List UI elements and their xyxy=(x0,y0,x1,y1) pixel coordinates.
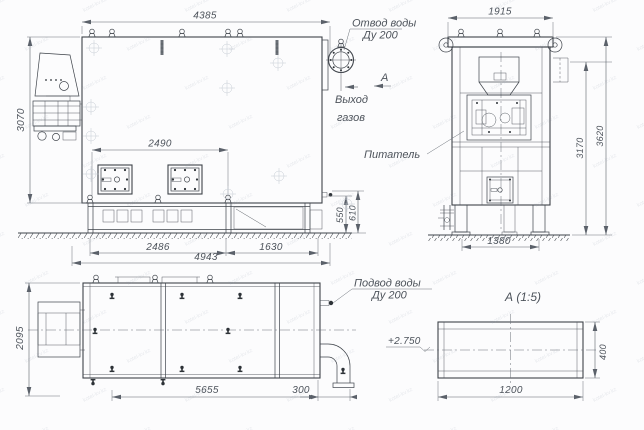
watermark-text: kotel-kv.kz xyxy=(330,36,356,53)
front-door-right xyxy=(168,165,202,194)
detail-a-title: А (1:5) xyxy=(504,290,541,304)
watermark-text: kotel-kv.kz xyxy=(388,0,414,14)
elevation-value: +2.750 xyxy=(388,336,421,347)
watermark-text: kotel-kv.kz xyxy=(534,192,560,209)
watermark-text: kotel-kv.kz xyxy=(0,75,6,92)
dim-front-doors: 2490 xyxy=(147,139,172,150)
watermark-text: kotel-kv.kz xyxy=(592,309,618,326)
watermark-text: kotel-kv.kz xyxy=(24,114,50,131)
dim-h-610: 610 xyxy=(348,205,358,221)
front-hanger-rods xyxy=(161,40,279,55)
dim-base-total: 4943 xyxy=(194,252,218,263)
end-view: 1915 xyxy=(364,7,612,252)
watermark-text: kotel-kv.kz xyxy=(126,270,152,287)
watermark-text: kotel-kv.kz xyxy=(184,75,210,92)
watermark-text: kotel-kv.kz xyxy=(126,348,152,365)
watermark-text: kotel-kv.kz xyxy=(592,0,618,14)
plan-dimensions: 2095 5655 300 xyxy=(15,283,357,401)
watermark-text: kotel-kv.kz xyxy=(286,75,312,92)
watermark-text: kotel-kv.kz xyxy=(0,231,6,248)
front-feeder-machine xyxy=(33,53,82,141)
watermark-text: kotel-kv.kz xyxy=(592,153,618,170)
watermark-text: kotel-kv.kz xyxy=(24,192,50,209)
watermark-text: kotel-kv.kz xyxy=(636,348,644,365)
watermark-text: kotel-kv.kz xyxy=(126,36,152,53)
watermark-text: kotel-kv.kz xyxy=(228,426,254,430)
watermark-text: kotel-kv.kz xyxy=(534,270,560,287)
registration-marks xyxy=(83,40,355,212)
front-drain-fitting xyxy=(322,193,332,198)
watermark-text: kotel-kv.kz xyxy=(24,36,50,53)
plan-inlet-fitting xyxy=(320,301,333,306)
dim-h-550: 550 xyxy=(335,207,345,223)
watermark-text: kotel-kv.kz xyxy=(388,387,414,404)
feeder-callout: Питатель xyxy=(364,131,464,161)
end-drain-pipe xyxy=(438,205,454,230)
front-dimensions: 4385 3070 2490 2486 1630 4943 550 610 xyxy=(16,11,366,267)
watermark-text: kotel-kv.kz xyxy=(490,153,516,170)
end-gas-duct xyxy=(553,58,568,82)
watermark-text: kotel-kv.kz xyxy=(534,426,560,430)
dim-base-a: 2486 xyxy=(145,242,170,253)
plan-view: Подвод воды Ду 200 2095 5655 300 xyxy=(15,275,432,401)
watermark-text: kotel-kv.kz xyxy=(330,426,356,430)
front-view: Отвод воды Ду 200 А Выход газов xyxy=(16,11,416,267)
watermark-text: kotel-kv.kz xyxy=(24,426,50,430)
watermark-text: kotel-kv.kz xyxy=(330,270,356,287)
end-feeder-unit xyxy=(467,95,531,140)
watermark-text: kotel-kv.kz xyxy=(126,114,152,131)
watermark-text: kotel-kv.kz xyxy=(82,0,108,14)
watermark-text: kotel-kv.kz xyxy=(286,309,312,326)
watermark-text: kotel-kv.kz xyxy=(388,231,414,248)
watermark-text: kotel-kv.kz xyxy=(388,309,414,326)
dim-front-width: 4385 xyxy=(193,11,217,22)
watermark-text: kotel-kv.kz xyxy=(0,309,6,326)
watermark-text: kotel-kv.kz xyxy=(432,426,458,430)
watermark-text: kotel-kv.kz xyxy=(636,192,644,209)
watermark-text: kotel-kv.kz xyxy=(184,309,210,326)
watermark-text: kotel-kv.kz xyxy=(82,309,108,326)
watermark-text: kotel-kv.kz xyxy=(636,426,644,430)
watermark-text: kotel-kv.kz xyxy=(432,114,458,131)
watermark-text: kotel-kv.kz xyxy=(534,348,560,365)
end-legs xyxy=(452,205,549,235)
watermark-text: kotel-kv.kz xyxy=(636,114,644,131)
watermark-text: kotel-kv.kz xyxy=(126,426,152,430)
watermark-text: kotel-kv.kz xyxy=(0,0,6,14)
watermark-text: kotel-kv.kz xyxy=(636,270,644,287)
watermark-text: kotel-kv.kz xyxy=(534,114,560,131)
elevation-mark: +2.750 xyxy=(386,336,430,352)
section-letter: А xyxy=(380,72,388,84)
technical-drawing-sheet: Отвод воды Ду 200 А Выход газов xyxy=(0,0,644,430)
watermark-text: kotel-kv.kz xyxy=(228,348,254,365)
dim-plan-depth: 2095 xyxy=(15,326,26,351)
watermark-text: kotel-kv.kz xyxy=(24,348,50,365)
watermark-text: kotel-kv.kz xyxy=(82,387,108,404)
drawing-canvas: Отвод воды Ду 200 А Выход газов xyxy=(0,0,644,430)
watermark-text: kotel-kv.kz xyxy=(24,270,50,287)
detail-a-view: А (1:5) 400 1200 +2.750 xyxy=(386,290,608,401)
water-inlet-label-line2: Ду 200 xyxy=(370,290,408,302)
watermark-text: kotel-kv.kz xyxy=(228,36,254,53)
watermark-text: kotel-kv.kz xyxy=(592,231,618,248)
plan-bolt-marks xyxy=(91,293,346,386)
grate-group-2 xyxy=(153,210,192,222)
water-outlet-label-line1: Отвод воды xyxy=(352,18,416,30)
watermark-text: kotel-kv.kz xyxy=(432,192,458,209)
front-base-frame xyxy=(88,203,322,233)
gas-outlet-label-line1: Выход xyxy=(335,94,368,106)
watermark-text: kotel-kv.kz xyxy=(184,153,210,170)
dim-end-h-total: 3620 xyxy=(595,125,605,146)
dim-detail-height: 400 xyxy=(598,344,608,360)
watermark-text: kotel-kv.kz xyxy=(490,309,516,326)
watermark-text: kotel-kv.kz xyxy=(534,36,560,53)
watermark-text: kotel-kv.kz xyxy=(0,387,6,404)
dim-base-b: 1630 xyxy=(259,242,283,253)
watermark-text: kotel-kv.kz xyxy=(432,270,458,287)
watermark-text: kotel-kv.kz xyxy=(82,153,108,170)
watermark-text: kotel-kv.kz xyxy=(592,387,618,404)
section-arrow-a: А xyxy=(345,72,391,87)
front-lifting-eyes xyxy=(89,29,243,37)
watermark-text: kotel-kv.kz xyxy=(636,36,644,53)
front-door-left xyxy=(98,165,132,194)
watermark-text: kotel-kv.kz xyxy=(432,348,458,365)
watermark-text: kotel-kv.kz xyxy=(82,75,108,92)
water-inlet-label-line1: Подвод воды xyxy=(354,278,421,290)
water-inlet-callout: Подвод воды Ду 200 xyxy=(333,278,432,304)
grate-group-1 xyxy=(103,210,142,222)
end-dimensions: 1380 3170 3620 xyxy=(462,37,612,251)
watermark-text: kotel-kv.kz xyxy=(388,75,414,92)
watermark-text: kotel-kv.kz xyxy=(0,153,6,170)
water-outlet-callout: Отвод воды Ду 200 xyxy=(344,18,416,51)
watermark-text: kotel-kv.kz xyxy=(592,75,618,92)
watermark-text: kotel-kv.kz xyxy=(286,0,312,14)
watermark-text: kotel-kv.kz xyxy=(286,153,312,170)
dim-end-h-inner: 3170 xyxy=(575,137,585,158)
watermark-text: kotel-kv.kz xyxy=(228,270,254,287)
end-hatch-door xyxy=(487,177,513,203)
watermark-text: kotel-kv.kz xyxy=(228,114,254,131)
water-outlet-label-line2: Ду 200 xyxy=(361,30,399,42)
